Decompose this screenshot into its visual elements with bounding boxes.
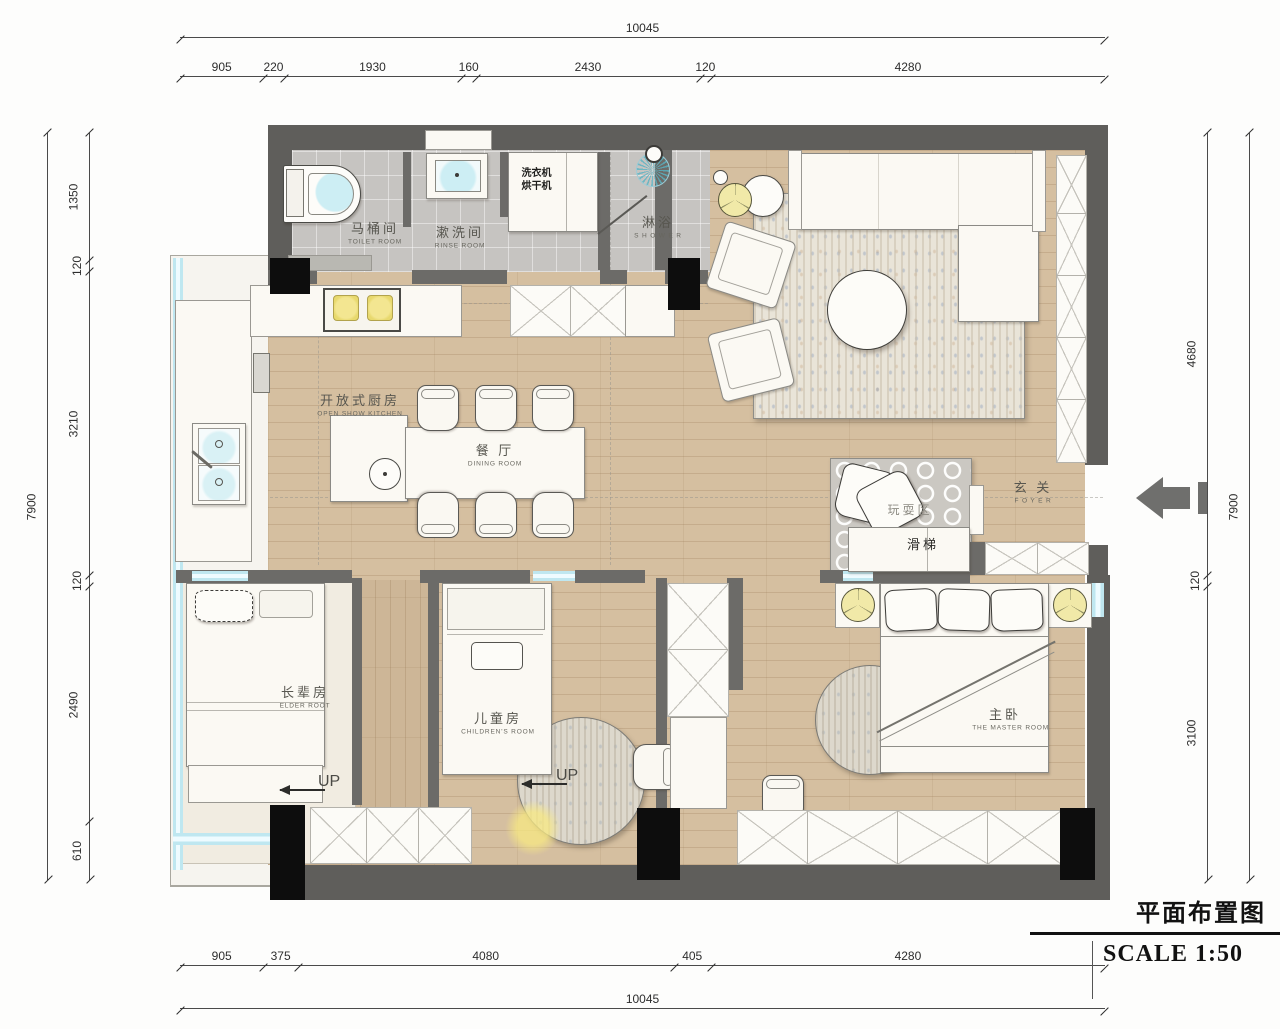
- master-wardrobe: [897, 810, 989, 865]
- play-label: 玩耍区: [870, 503, 950, 519]
- dim-segment: 7900: [32, 133, 48, 880]
- master-pillow: [884, 588, 938, 633]
- toilet-tank: [286, 169, 304, 217]
- dim-segment: 120: [1192, 576, 1208, 587]
- nightstand-lamp: [841, 588, 875, 622]
- hallway-floor: [360, 580, 430, 808]
- dim-value: 610: [70, 841, 84, 861]
- wall-bedrooms-top: [575, 570, 645, 583]
- dim-segment: 120: [74, 261, 90, 272]
- dim-value: 375: [271, 949, 291, 963]
- dim-segment: 4080: [298, 950, 674, 966]
- dim-value: 4280: [895, 60, 922, 74]
- dim-value: 4280: [895, 949, 922, 963]
- window-right-wall: [1092, 583, 1104, 617]
- dim-value: 4080: [472, 949, 499, 963]
- dim-value: 220: [263, 60, 283, 74]
- dim-segment: 1930: [284, 61, 462, 77]
- dim-segment: 2430: [476, 61, 700, 77]
- dim-value: 3100: [1185, 720, 1199, 747]
- sofa-chaise: [958, 225, 1039, 322]
- master-label: 主卧THE MASTER ROOM: [965, 707, 1045, 734]
- wall-rinse-laundry: [500, 152, 508, 217]
- shoe-cabinet: [1037, 542, 1089, 575]
- dim-segment: 610: [74, 822, 90, 880]
- shower-head-icon: [636, 153, 670, 187]
- sink-drain: [215, 440, 223, 448]
- hall-cabinet: [570, 285, 627, 337]
- slide-label: 滑梯: [893, 537, 953, 554]
- dining-chair: [475, 492, 517, 538]
- wall-right-upper: [1085, 150, 1108, 465]
- toilet-bowl: [308, 173, 354, 215]
- dim-value: 4680: [1185, 341, 1199, 368]
- wall-elder-right: [352, 578, 362, 805]
- children-label: 儿童房CHILDREN'S ROOM: [448, 711, 548, 738]
- cabinet: [1056, 155, 1087, 215]
- dim-value: 10045: [626, 21, 659, 35]
- rinse-drain: [455, 173, 459, 177]
- side-table-lamp: [718, 183, 752, 217]
- cabinet: [1056, 399, 1087, 463]
- wall-toilet-rinse: [403, 152, 411, 227]
- column: [1060, 808, 1095, 880]
- dim-right-total: 7900: [1234, 133, 1250, 880]
- sofa-main: [797, 153, 1039, 230]
- scale-row: SCALE 1:50: [1030, 941, 1280, 999]
- burner: [333, 295, 359, 321]
- wall-laundry-shower: [598, 152, 610, 270]
- title-rule: [1030, 932, 1280, 935]
- dim-bottom-segments: 90537540804054280: [180, 950, 1105, 966]
- children-bed: [442, 583, 552, 775]
- dim-value: 905: [212, 949, 232, 963]
- elder-pillow: [195, 590, 253, 622]
- nightstand-lamp: [1053, 588, 1087, 622]
- dim-segment: 375: [263, 950, 298, 966]
- dim-segment: 2490: [74, 587, 90, 822]
- dim-value: 7900: [1227, 493, 1241, 520]
- kitchen-island: [330, 415, 408, 502]
- dim-value: 905: [212, 60, 232, 74]
- toilet-label: 马桶间TOILET ROOM: [330, 221, 420, 248]
- foyer-label: 玄 关F O Y E R: [988, 480, 1078, 507]
- burner: [367, 295, 393, 321]
- toilet: [283, 165, 361, 223]
- wall-top: [268, 125, 1108, 150]
- small-ball-lamp: [713, 170, 728, 185]
- hall-closet: [310, 807, 368, 864]
- floor-plan: 洗衣机 烘干机: [170, 125, 1110, 905]
- wall-bath-bottom: [600, 270, 627, 284]
- dim-left-total: 7900: [32, 133, 48, 880]
- dim-top-segments: 905220193016024301204280: [180, 61, 1105, 77]
- dim-segment: 3210: [74, 272, 90, 576]
- dim-segment: 10045: [180, 22, 1105, 38]
- drawing-scale: SCALE 1:50: [1093, 941, 1243, 968]
- dim-segment: 905: [180, 61, 263, 77]
- dining-chair: [475, 385, 517, 431]
- dim-value: 405: [682, 949, 702, 963]
- entrance-arrow-stem: [1163, 487, 1190, 509]
- elder-bed: [186, 583, 325, 767]
- children-pillow: [471, 642, 523, 670]
- sofa-seam: [958, 154, 959, 229]
- dining-chair: [532, 385, 574, 431]
- children-ceiling-glow: [505, 800, 561, 856]
- dim-value: 7900: [25, 493, 39, 520]
- door-sill-elder: [192, 571, 248, 581]
- door-sill-master: [843, 571, 873, 581]
- laundry-label: 洗衣机 烘干机: [509, 167, 564, 193]
- children-blanket-line: [447, 634, 543, 635]
- kitchen-label: 开放式厨房OPEN SHOW KITCHEN: [285, 393, 435, 420]
- dim-bottom-total: 10045: [180, 993, 1105, 1009]
- sink-drain: [215, 478, 223, 486]
- master-pillow: [990, 588, 1043, 632]
- shower-head-center: [645, 145, 663, 163]
- wall-master-left: [727, 578, 743, 690]
- wall-bottom: [300, 865, 1108, 900]
- children-headboard: [447, 588, 545, 630]
- floor-plan-sheet: { "title_block": { "title": "平面布置图", "sc…: [0, 0, 1280, 1029]
- entrance-arrow-bar: [1198, 482, 1207, 514]
- sofa-armrest: [788, 150, 802, 230]
- dim-segment: 120: [74, 576, 90, 587]
- entrance-arrow: [1136, 477, 1163, 519]
- dining-chair: [417, 492, 459, 538]
- dim-value: 3210: [67, 410, 81, 437]
- dining-label: 餐 厅DINING ROOM: [440, 443, 550, 470]
- column: [637, 808, 680, 880]
- wardrobe: [667, 649, 729, 717]
- column: [270, 805, 305, 900]
- dim-segment: 405: [674, 950, 711, 966]
- desk: [670, 717, 727, 809]
- master-blanket-line: [881, 636, 1048, 637]
- dim-segment: 905: [180, 950, 263, 966]
- armchair-cushion: [718, 328, 782, 390]
- cooktop: [323, 288, 401, 332]
- laundry-divider: [566, 153, 567, 231]
- dim-value: 10045: [626, 992, 659, 1006]
- pipe-fixture: [253, 353, 270, 393]
- drawing-title: 平面布置图: [1030, 893, 1280, 928]
- dim-segment: 10045: [180, 993, 1105, 1009]
- shower-label: 淋浴S H O W E R: [613, 215, 703, 242]
- title-block: 平面布置图 SCALE 1:50: [1030, 893, 1280, 999]
- cabinet: [1056, 337, 1087, 401]
- elder-pillow2: [259, 590, 313, 618]
- dim-segment: 120: [700, 61, 711, 77]
- cabinet: [1056, 275, 1087, 339]
- foyer-pillar: [969, 485, 984, 535]
- master-wardrobe: [807, 810, 899, 865]
- wardrobe: [667, 583, 729, 651]
- master-pillow: [937, 588, 990, 632]
- island-round-sink: [369, 458, 401, 490]
- master-bed-footline: [881, 746, 1048, 747]
- hall-cabinet: [510, 285, 572, 337]
- hall-closet: [418, 807, 472, 864]
- window-top-wall: [425, 130, 492, 150]
- kitchen-sink: [192, 423, 246, 505]
- dim-segment: 3100: [1192, 587, 1208, 880]
- master-wardrobe: [987, 810, 1062, 865]
- dim-segment: 1350: [74, 133, 90, 261]
- laundry-closet: 洗衣机 烘干机: [508, 152, 598, 232]
- elder-bed-bench: [188, 765, 323, 803]
- dim-segment: 4280: [711, 61, 1105, 77]
- sofa-armrest: [1032, 150, 1046, 232]
- dim-value: 1930: [359, 60, 386, 74]
- island-sink-dot: [383, 472, 387, 476]
- dim-value: 1350: [67, 183, 81, 210]
- rinse-label: 漱洗间RINSE ROOM: [415, 225, 505, 252]
- dining-chair: [532, 492, 574, 538]
- up-arrow-elder: [280, 789, 325, 791]
- dashed-guide: [610, 152, 611, 565]
- cabinet: [1056, 213, 1087, 277]
- armchair-cushion: [717, 232, 784, 296]
- wall-bath-bottom: [412, 270, 507, 284]
- living-label-circle: [827, 270, 907, 350]
- dim-value: 2430: [575, 60, 602, 74]
- column: [270, 258, 310, 294]
- elder-label: 长辈房ELDER ROOT: [260, 685, 350, 712]
- shoe-cabinet: [985, 542, 1039, 575]
- door-sill-children: [533, 571, 575, 581]
- master-bed: [880, 583, 1049, 773]
- rinse-vanity: [426, 153, 488, 199]
- up-arrow-children: [522, 783, 567, 785]
- dim-segment: 160: [461, 61, 476, 77]
- dim-top-total: 10045: [180, 22, 1105, 38]
- dim-value: 2490: [67, 691, 81, 718]
- column: [668, 258, 700, 310]
- master-wardrobe: [737, 810, 809, 865]
- dim-segment: 220: [263, 61, 283, 77]
- dim-left-segments: 135012032101202490610: [74, 133, 90, 880]
- sofa-seam: [878, 154, 879, 229]
- dim-segment: 7900: [1234, 133, 1250, 880]
- hall-closet: [366, 807, 420, 864]
